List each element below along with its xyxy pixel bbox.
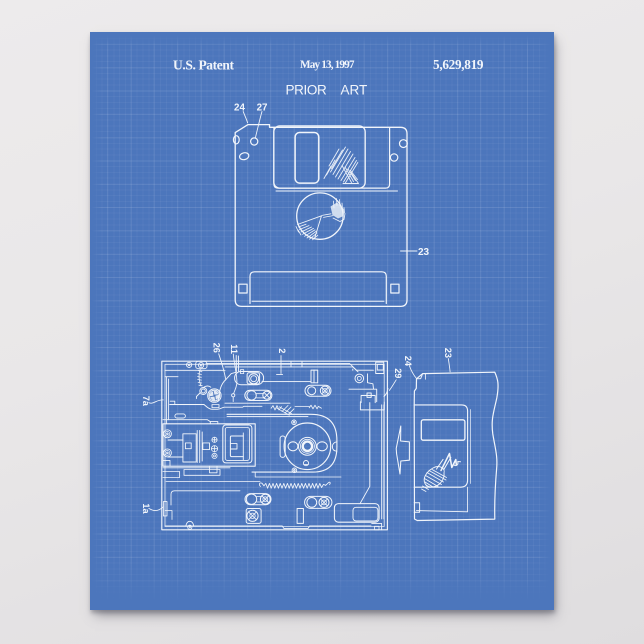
svg-text:PRIOR: PRIOR [286,83,330,98]
svg-text:5,629,819: 5,629,819 [433,57,484,72]
svg-text:11: 11 [229,344,239,354]
svg-text:ART: ART [341,83,371,98]
svg-text:7a: 7a [141,396,151,407]
svg-text:23: 23 [443,348,453,358]
svg-text:24: 24 [403,356,413,367]
svg-text:29: 29 [393,368,403,378]
svg-text:23: 23 [418,247,430,258]
svg-text:May 13, 1997: May 13, 1997 [300,59,355,71]
svg-text:2: 2 [277,348,287,353]
svg-text:26: 26 [212,343,222,353]
svg-text:U.S. Patent: U.S. Patent [173,58,235,73]
